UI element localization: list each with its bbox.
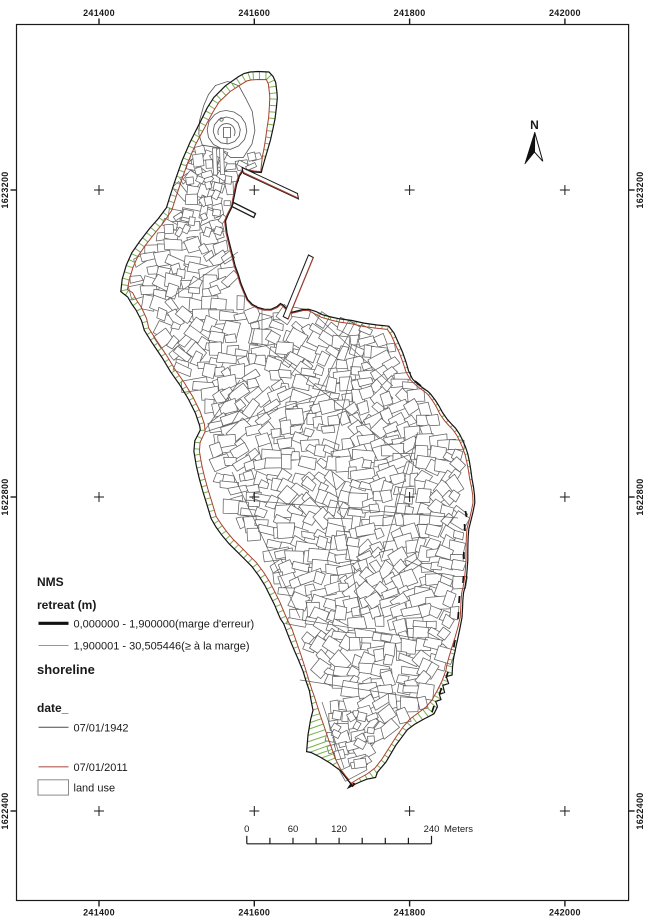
svg-text:1622400: 1622400 <box>0 792 10 829</box>
svg-text:241400: 241400 <box>83 8 115 18</box>
svg-text:241600: 241600 <box>238 908 270 918</box>
svg-text:0,000000 - 1,900000(marge d'er: 0,000000 - 1,900000(marge d'erreur) <box>74 619 255 631</box>
svg-text:1622400: 1622400 <box>635 792 645 829</box>
svg-text:1622800: 1622800 <box>635 478 645 515</box>
svg-text:shoreline: shoreline <box>37 662 95 677</box>
svg-text:242000: 242000 <box>549 8 581 18</box>
svg-text:60: 60 <box>288 824 299 835</box>
svg-text:date_: date_ <box>37 701 69 715</box>
svg-text:241800: 241800 <box>394 908 426 918</box>
svg-text:retreat (m): retreat (m) <box>37 598 96 612</box>
svg-text:07/01/2011: 07/01/2011 <box>74 762 128 774</box>
svg-text:NMS: NMS <box>37 575 64 589</box>
svg-text:241600: 241600 <box>238 8 270 18</box>
svg-text:Meters: Meters <box>444 824 473 835</box>
svg-text:N: N <box>530 118 539 132</box>
svg-text:07/01/1942: 07/01/1942 <box>74 723 129 735</box>
svg-text:land use: land use <box>74 783 116 795</box>
svg-text:240: 240 <box>424 824 440 835</box>
svg-text:241800: 241800 <box>394 8 426 18</box>
svg-text:0: 0 <box>244 824 249 835</box>
svg-text:1,900001 - 30,505446(≥ à la ma: 1,900001 - 30,505446(≥ à la marge) <box>74 641 250 653</box>
svg-text:1623200: 1623200 <box>635 171 645 208</box>
svg-text:242000: 242000 <box>549 908 581 918</box>
svg-text:120: 120 <box>331 824 347 835</box>
svg-text:241400: 241400 <box>83 908 115 918</box>
svg-text:1623200: 1623200 <box>0 171 10 208</box>
svg-text:1622800: 1622800 <box>0 478 10 515</box>
